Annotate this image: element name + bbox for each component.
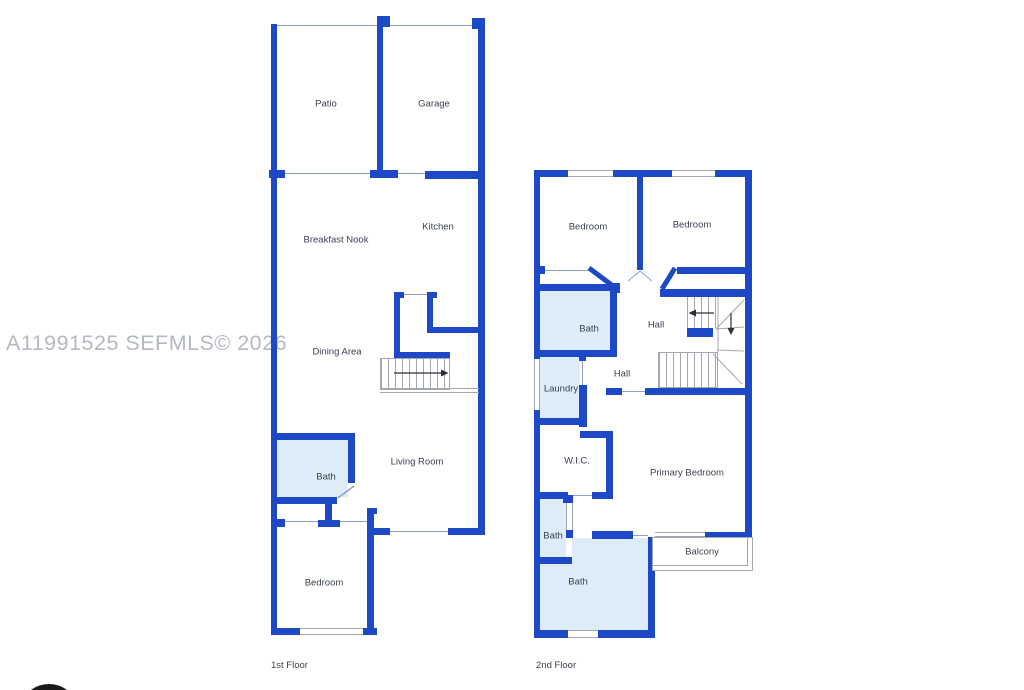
door-opening-line <box>285 173 370 174</box>
wall-segment <box>592 492 613 499</box>
wall-segment <box>592 531 633 539</box>
wall-segment <box>425 171 485 179</box>
wall-segment <box>534 418 587 425</box>
patio-edge-line <box>277 25 377 26</box>
room-label-bath-main: Bath <box>568 577 588 588</box>
wall-segment <box>377 16 383 177</box>
room-label-balcony: Balcony <box>685 547 719 558</box>
window <box>568 630 598 638</box>
exterior-wall <box>271 24 277 635</box>
exterior-wall <box>745 170 752 539</box>
room-label-bedroom: Bedroom <box>305 578 344 589</box>
wall-segment <box>579 353 586 361</box>
room-label-hall-upper: Hall <box>648 320 664 331</box>
wall-segment <box>318 520 340 527</box>
room-label-hall-lower: Hall <box>614 369 630 380</box>
door-opening-line <box>545 270 588 271</box>
wall-segment <box>534 350 617 357</box>
wall-segment <box>271 433 355 440</box>
door-opening-line <box>633 535 648 536</box>
room-label-dining-area: Dining Area <box>312 347 361 358</box>
wall-segment <box>606 388 622 395</box>
room-label-wic: W.I.C. <box>564 456 590 467</box>
wall-segment <box>677 267 752 274</box>
wall-segment <box>566 530 573 538</box>
wall-segment <box>269 170 285 178</box>
wall-segment <box>394 292 400 358</box>
door-opening-line <box>285 521 318 522</box>
stair-edge-line <box>380 388 479 393</box>
wall-segment <box>534 266 545 274</box>
wall-segment <box>534 557 572 564</box>
floor-plan-canvas: A11991525 SEFMLS© 2026 <box>0 0 1024 690</box>
window <box>300 628 363 635</box>
wall-segment <box>637 170 643 270</box>
wall-segment <box>606 431 613 499</box>
wall-segment <box>563 495 573 503</box>
staircase-second-floor-lower <box>658 352 718 388</box>
floor-title-1st: 1st Floor <box>271 660 308 671</box>
room-label-bedroom-right: Bedroom <box>673 220 712 231</box>
room-fill-bath-small <box>540 499 566 557</box>
door-opening-line <box>622 391 645 392</box>
room-label-bath-upper: Bath <box>579 324 599 335</box>
exterior-wall <box>478 18 485 535</box>
room-label-breakfast-nook: Breakfast Nook <box>304 235 369 246</box>
wall-segment <box>427 327 485 333</box>
wall-segment <box>687 328 713 337</box>
wall-segment <box>610 284 617 356</box>
room-label-bath-small: Bath <box>543 531 563 542</box>
wall-segment <box>448 528 485 535</box>
door-opening-line <box>398 173 425 174</box>
room-label-garage: Garage <box>418 99 450 110</box>
room-label-bedroom-left: Bedroom <box>569 222 608 233</box>
room-label-primary-bedroom: Primary Bedroom <box>650 468 724 479</box>
room-label-bath: Bath <box>316 472 336 483</box>
room-label-patio: Patio <box>315 99 337 110</box>
window <box>672 170 715 177</box>
room-label-laundry: Laundry <box>544 384 578 395</box>
room-label-kitchen: Kitchen <box>422 222 454 233</box>
wall-segment <box>348 433 355 483</box>
room-label-living-room: Living Room <box>391 457 444 468</box>
garage-door-line <box>390 25 472 26</box>
mls-watermark: A11991525 SEFMLS© 2026 <box>6 331 287 356</box>
wall-segment <box>370 170 398 178</box>
stair-direction-arrow-second-floor-down <box>728 313 735 335</box>
wall-segment <box>534 284 617 291</box>
pocket-door <box>566 503 573 530</box>
room-fill-bath-main <box>540 564 572 630</box>
door-opening-line <box>404 294 427 295</box>
window <box>568 170 613 177</box>
room-fill-bath-upper <box>540 291 610 350</box>
wall-segment <box>645 388 752 395</box>
window <box>534 359 540 410</box>
room-fill-bath <box>277 440 348 497</box>
door-opening-line <box>340 521 367 522</box>
logo-partial <box>25 684 73 690</box>
floor-title-2nd: 2nd Floor <box>536 660 576 671</box>
wall-segment <box>367 528 390 535</box>
wall-segment <box>271 519 285 527</box>
door-opening-line <box>390 531 448 532</box>
staircase-second-floor-upper <box>687 297 718 328</box>
wall-segment <box>660 289 745 297</box>
door-opening-line <box>582 357 583 385</box>
staircase-first-floor <box>380 358 450 390</box>
wall-segment <box>427 292 433 332</box>
